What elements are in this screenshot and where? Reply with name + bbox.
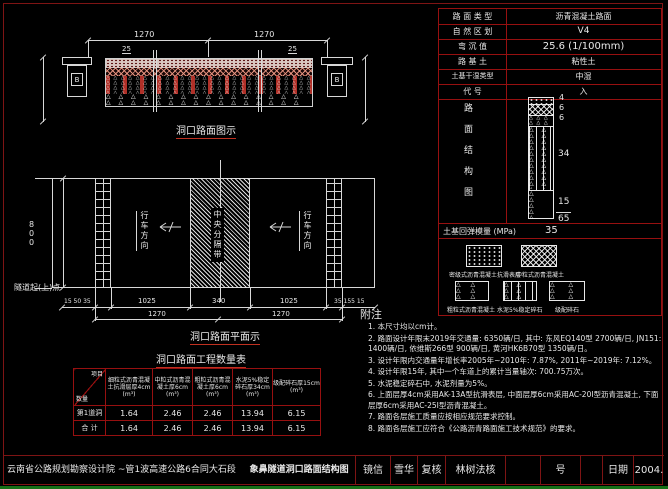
cell: 13.94: [233, 421, 273, 436]
offset-label: 25: [288, 45, 297, 54]
param-label: 土基干湿类型: [439, 69, 506, 84]
layer-thickness: 15: [558, 197, 569, 207]
strip-centerline: [334, 178, 335, 288]
modulus-label: 土基回弹模量 (MPa): [443, 226, 516, 237]
notes-heading: 附注: [360, 306, 382, 322]
note-item: 6. 上面层厚4cm采用AK-13A型抗滑表层, 中面层厚6cm采用AC-20Ⅰ…: [368, 390, 662, 411]
title-bar-cell: [580, 456, 602, 485]
legend-swatch-cement: △ △ △ △ △ △ △ △ △ △ △ △ △ △ △ △ △ △ △ △ …: [503, 281, 537, 301]
cell: 1.64: [106, 406, 153, 421]
triangle-hatch: △ △ △ △ △ △ △ △ △ △ △ △ △ △ △ △ △ △ △ △ …: [106, 76, 312, 94]
col-header: 粗粒式沥青混凝土厚6cm(m³): [193, 369, 233, 406]
total-thickness: 65: [556, 212, 571, 224]
dim-label: 15 50 35: [64, 298, 91, 305]
title-bar-cell: 雪华: [390, 456, 417, 485]
note-item: 4. 设计年限15年, 其中一个车道上的累计当量轴次: 700.75万次。: [368, 367, 662, 378]
layer-dowel-bars: △ △ △ △ △ △ △ △ △ △ △ △ △ △ △ △ △ △ △ △ …: [106, 76, 312, 94]
break-line: [258, 50, 259, 112]
layer-middle: [528, 105, 554, 116]
ext-line: [208, 40, 209, 57]
ext-line: [250, 288, 251, 309]
legend-label: 粗粒式沥青混凝土: [447, 305, 495, 314]
col-header: 水泥5%稳定碎石厚34cm(m³): [233, 369, 273, 406]
param-label: 弯 沉 值: [439, 39, 506, 54]
dim-label: 1025: [280, 297, 298, 305]
direction-arrow-left: [152, 220, 182, 234]
param-label: 路 基 土: [439, 54, 506, 69]
dim-label: 35 155 15: [334, 298, 365, 305]
layer-base: △ △ △ △ △ △ △ △ △ △ △ △ △ △ △ △ △ △ △ △ …: [528, 127, 554, 191]
triangle-hatch: △ △ △ △ △ △ △ △ △ △ △ △ △ △ △ △ △ △ △ △ …: [504, 282, 536, 300]
layer-thickness: 4: [559, 93, 564, 102]
dim-label: 1270: [134, 30, 154, 39]
quantity-table: 项目 数量 细粒式沥青混凝土抗滑层厚4cm(m³) 中粒式沥青混凝土厚6cm(m…: [73, 368, 321, 436]
row-label: 第1道洞: [74, 406, 106, 421]
table-row: 合 计 1.64 2.46 2.46 13.94 6.15: [74, 421, 321, 436]
plan-view-title: 洞口路面平面示: [190, 328, 260, 345]
param-label: 路 面 类 型: [439, 9, 506, 24]
section-view-title: 洞口路面图示: [176, 122, 236, 139]
cell: 13.94: [233, 406, 273, 421]
note-item: 7. 路面各层施工质量应按相应规范要求控制。: [368, 412, 662, 423]
note-item: 1. 本尺寸均以cm计。: [368, 322, 662, 333]
legend-swatch-middle: [521, 245, 557, 267]
dim-label: 1025: [138, 297, 156, 305]
param-label: 自 然 区 划: [439, 24, 506, 39]
layer-surface: [528, 97, 554, 105]
vdim-line: [43, 57, 44, 122]
note-item: 3. 设计年限内交通量年增长率2005年~2010年: 7.87%, 2011年…: [368, 356, 662, 367]
drawing-title: 象鼻隧道洞口路面结构图: [250, 465, 349, 475]
median-strip-label: 中央分隔带: [211, 208, 224, 262]
title-bar-cell: 林树法核: [445, 456, 505, 485]
row-label: 合 计: [74, 421, 106, 436]
break-line: [261, 50, 262, 112]
cad-sheet: 1270 1270 B B △ △ △ △ △ △ △ △ △ △ △ △ △ …: [0, 0, 668, 489]
param-value: 粘性土: [506, 54, 661, 69]
ext-line: [88, 40, 89, 57]
title-bar-cell: 日期: [602, 456, 633, 485]
dim-label: 1270: [254, 30, 274, 39]
edge-strip-right: [326, 178, 342, 288]
corner-top: 项目: [91, 371, 103, 378]
layer-thickness: 6: [559, 113, 564, 122]
centerline: [220, 160, 221, 178]
ext-line: [342, 288, 343, 321]
offset-label: 25: [122, 45, 131, 54]
break-line: [153, 50, 154, 112]
legend-label: 级配碎石: [555, 305, 579, 314]
grid-line: [439, 223, 661, 224]
ext-line: [327, 40, 328, 57]
note-item: 2. 路面设计年限末2019年交通量: 6350辆/日, 其中: 东风EQ140…: [368, 334, 662, 355]
layer-thickness: 34: [558, 149, 569, 159]
layer-surface-hatch: [106, 59, 312, 68]
param-label: 代 号: [439, 84, 506, 99]
legend-label: 密级式沥青混凝土抗滑表层: [449, 270, 521, 279]
title-bar-cell: 号: [540, 456, 580, 485]
break-line: [156, 50, 157, 112]
project-title: 云南省公路规划勘察设计院 ~管1波高速公路6合同大石段: [7, 465, 236, 475]
cell: 6.15: [273, 406, 321, 421]
dim-label: 340: [212, 297, 225, 305]
strip-centerline: [103, 178, 104, 288]
duct-label-right: B: [331, 73, 343, 86]
duct-flange-left: [62, 57, 92, 65]
dim-label: 1270: [148, 310, 166, 318]
layer-lower: △ △ △ △ △ △ △ △ △ △ △ △ △ △ △ △ △ △ △ △ …: [528, 116, 554, 127]
title-bar-cell: 复核: [417, 456, 445, 485]
legend-swatch-coarse: △ △ △ △ △ △ △ △ △ △ △ △ △ △ △ △ △ △ △ △ …: [455, 281, 489, 301]
param-value: 中湿: [506, 69, 661, 84]
cell: 2.46: [193, 421, 233, 436]
legend-label: 中粒式沥青混凝土: [516, 270, 564, 279]
legend-label: 水泥5%稳定碎石: [497, 305, 543, 314]
corner-cell: 项目 数量: [74, 369, 106, 406]
notes-list: 1. 本尺寸均以cm计。 2. 路面设计年限末2019年交通量: 6350辆/日…: [368, 322, 662, 435]
cell: 2.46: [153, 406, 193, 421]
pavement-band: △ △ △ △ △ △ △ △ △ △ △ △ △ △ △ △ △ △ △ △ …: [105, 58, 313, 107]
legend-swatch-graded: △ △ △ △ △ △ △ △ △ △ △ △ △ △ △ △ △ △ △ △ …: [549, 281, 585, 301]
corner-bottom: 数量: [76, 396, 88, 403]
edge-strip-left: [95, 178, 111, 288]
layer-middle-hatch: [106, 68, 312, 76]
direction-label-right: 行车方向: [299, 211, 313, 251]
title-bar-cell: 镜信: [355, 456, 390, 485]
duct-label-left: B: [71, 73, 83, 86]
dim-label: 1270: [272, 310, 290, 318]
height-dim-label: 800: [27, 220, 36, 247]
modulus-value: 35: [545, 225, 558, 236]
direction-label-left: 行车方向: [136, 211, 150, 251]
param-value: V4: [506, 24, 661, 39]
direction-arrow-right: [262, 220, 292, 234]
note-item: 8. 路面各层施工应符合《公路沥青路面施工技术规范》的要求。: [368, 424, 662, 435]
quantity-table-title: 洞口路面工程数量表: [156, 351, 246, 368]
title-bar-cell: 2004.: [633, 456, 664, 485]
cell: 1.64: [106, 421, 153, 436]
tunnel-origin-label: 隧道起(上)点: [14, 282, 60, 293]
param-value: 25.6 (1/100mm): [506, 39, 661, 54]
structure-column: △ △ △ △ △ △ △ △ △ △ △ △ △ △ △ △ △ △ △ △ …: [528, 97, 554, 219]
ext-line: [95, 288, 96, 321]
col-header: 细粒式沥青混凝土抗滑层厚4cm(m³): [106, 369, 153, 406]
param-table: 路 面 类 型 沥青混凝土路面 自 然 区 划 V4 弯 沉 值 25.6 (1…: [438, 8, 662, 316]
cell: 2.46: [153, 421, 193, 436]
table-row: 第1道洞 1.64 2.46 2.46 13.94 6.15: [74, 406, 321, 421]
note-item: 5. 水泥稳定碎石中, 水泥剂量为5%。: [368, 379, 662, 390]
title-bar-cell: [505, 456, 540, 485]
duct-flange-right: [321, 57, 353, 65]
legend-swatch-surface: [466, 245, 502, 267]
cell: 2.46: [193, 406, 233, 421]
vdim-line: [365, 57, 366, 122]
ext-line: [326, 288, 327, 309]
grid-line: [439, 238, 661, 239]
title-bar-project-cell: 云南省公路规划勘察设计院 ~管1波高速公路6合同大石段 象鼻隧道洞口路面结构图: [4, 456, 355, 485]
cell: 6.15: [273, 421, 321, 436]
layer-subbase: △ △ △ △ △ △ △ △ △ △ △ △ △ △ △ △ △ △ △ △ …: [528, 191, 554, 219]
ext-line: [111, 288, 112, 309]
layer-base-hatch: △ △ △ △ △ △ △ △ △ △ △ △ △ △ △ △ △ △ △ △ …: [106, 94, 312, 106]
vdim-line: [63, 178, 64, 288]
ext-line: [35, 178, 52, 179]
col-header: 中粒式沥青混凝土厚6cm(m³): [153, 369, 193, 406]
triangle-hatch: △ △ △ △ △ △ △ △ △ △ △ △ △ △ △ △ △ △ △ △ …: [529, 127, 553, 189]
structure-label: 路面结构图: [461, 103, 474, 208]
ext-line: [190, 288, 191, 309]
col-header: 级配碎石厚15cm(m³): [273, 369, 321, 406]
param-value: 沥青混凝土路面: [506, 9, 661, 24]
layer-thickness: 6: [559, 103, 564, 112]
